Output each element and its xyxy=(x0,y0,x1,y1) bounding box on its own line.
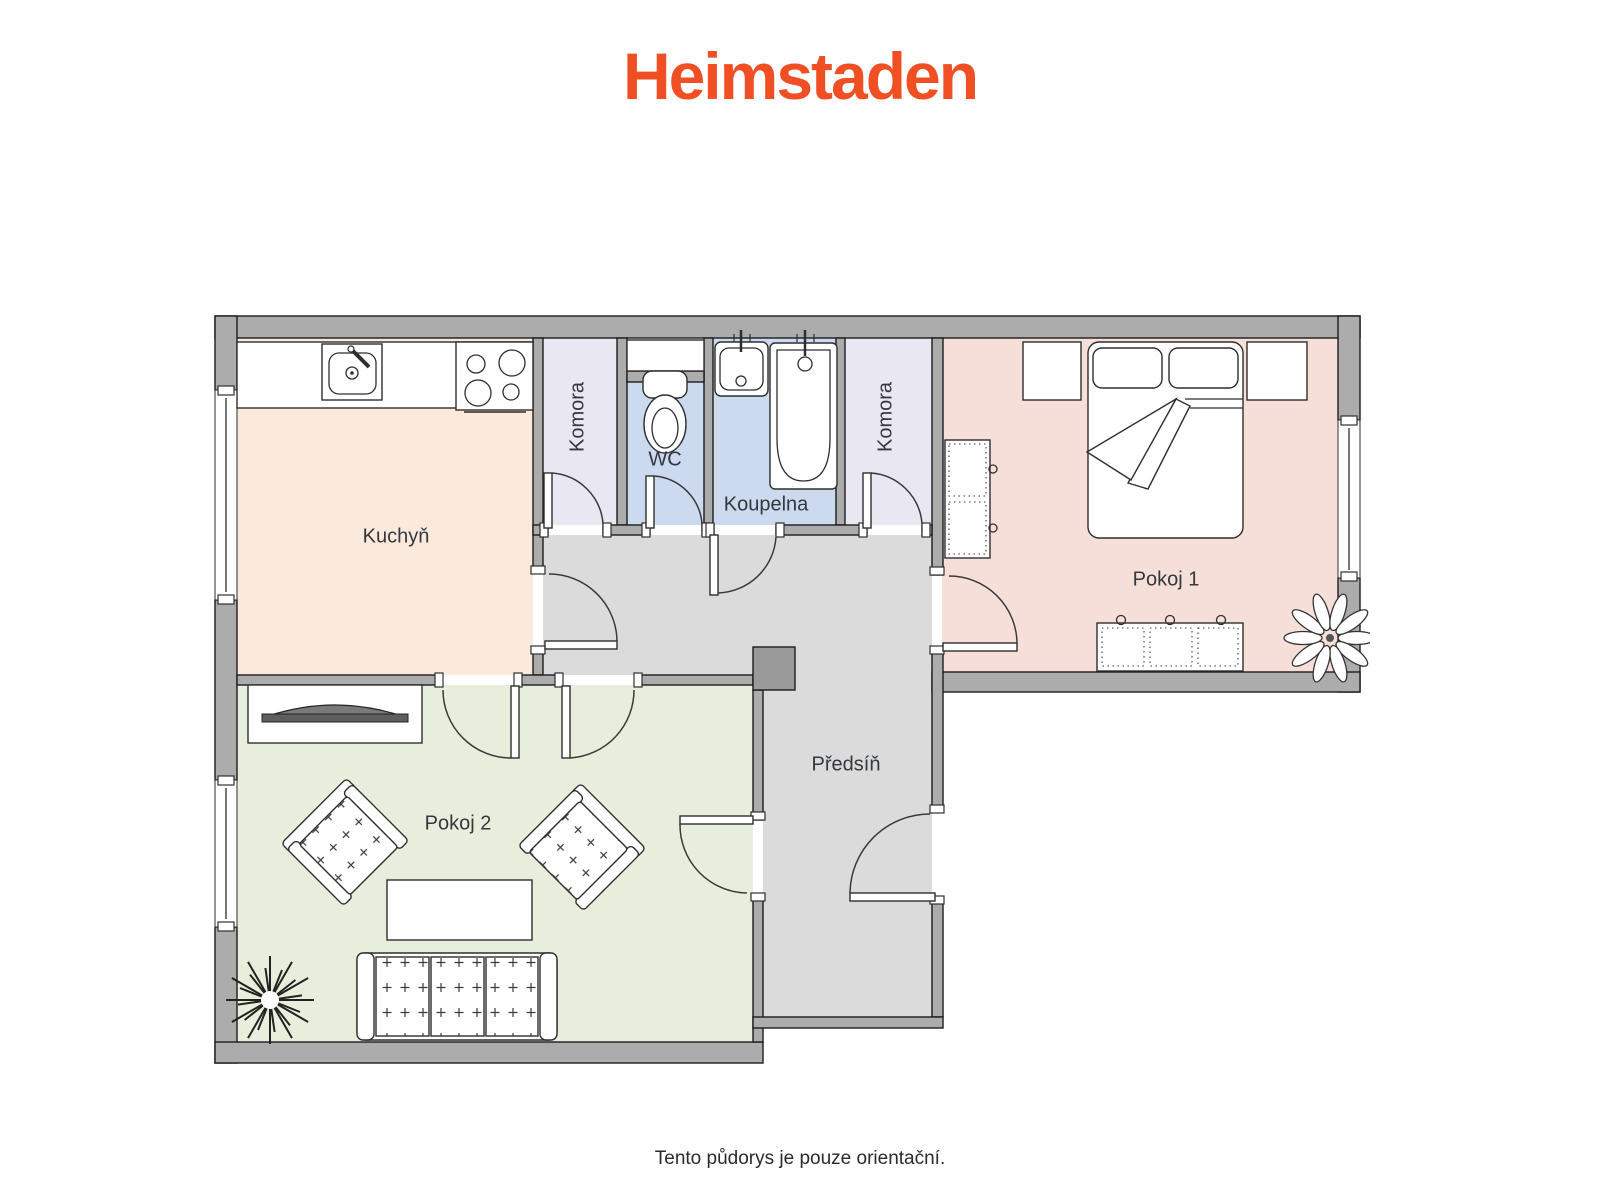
shaft xyxy=(753,647,795,690)
label-pokoj1: Pokoj 1 xyxy=(1133,569,1200,592)
floorplan-drawing xyxy=(200,300,1370,1085)
label-pokoj2: Pokoj 2 xyxy=(425,813,492,836)
label-komora2: Komora xyxy=(875,382,898,452)
disclaimer-text: Tento půdorys je pouze orientační. xyxy=(0,1148,1600,1170)
stove xyxy=(456,342,533,412)
tv-cabinet xyxy=(248,685,422,743)
kitchen-sink xyxy=(322,344,382,400)
label-predsin: Předsíň xyxy=(812,754,881,777)
bathtub xyxy=(770,330,837,489)
coffee-table xyxy=(387,880,532,940)
window-pokoj1 xyxy=(1338,416,1360,581)
window-pokoj2 xyxy=(215,776,237,931)
label-wc: WC xyxy=(648,449,681,472)
nightstand-left xyxy=(1023,342,1081,400)
toilet xyxy=(643,371,687,453)
window-kitchen xyxy=(215,386,237,604)
label-komora1: Komora xyxy=(567,382,590,452)
wc-shelf xyxy=(627,340,704,371)
heimstaden-logo: Heimstaden xyxy=(0,38,1600,114)
nightstand-right xyxy=(1247,342,1307,400)
floorplan-page: { "brand": { "logo_text": "Heimstaden", … xyxy=(0,0,1600,1200)
predsin-floor-upper xyxy=(543,535,932,675)
label-koupelna: Koupelna xyxy=(724,494,809,517)
predsin-floor-lower xyxy=(763,675,932,1017)
wardrobe xyxy=(945,440,997,558)
dresser xyxy=(1097,616,1243,672)
sofa xyxy=(357,953,557,1040)
double-bed xyxy=(1087,342,1243,538)
label-kuchyn: Kuchyň xyxy=(363,526,430,549)
